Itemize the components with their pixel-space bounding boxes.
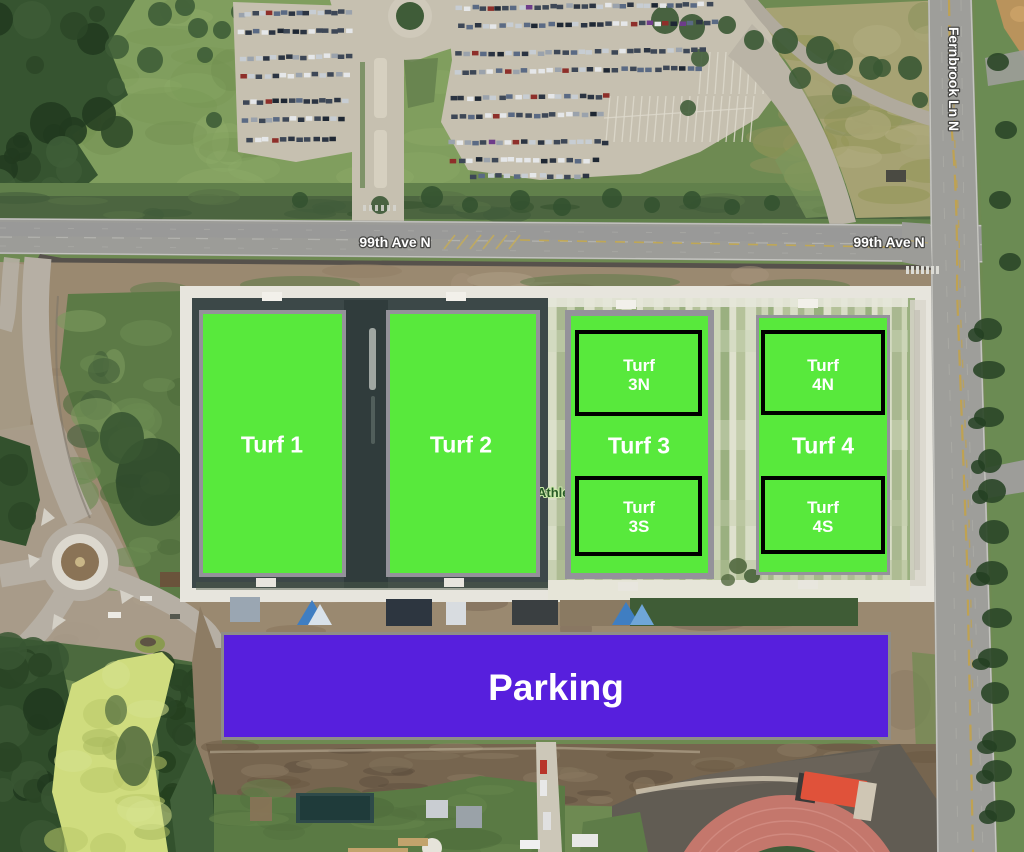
svg-text:99th Ave N: 99th Ave N bbox=[853, 234, 924, 250]
svg-text:99th Ave N: 99th Ave N bbox=[359, 234, 430, 250]
svg-text:Fernbrook Ln N: Fernbrook Ln N bbox=[946, 27, 962, 131]
